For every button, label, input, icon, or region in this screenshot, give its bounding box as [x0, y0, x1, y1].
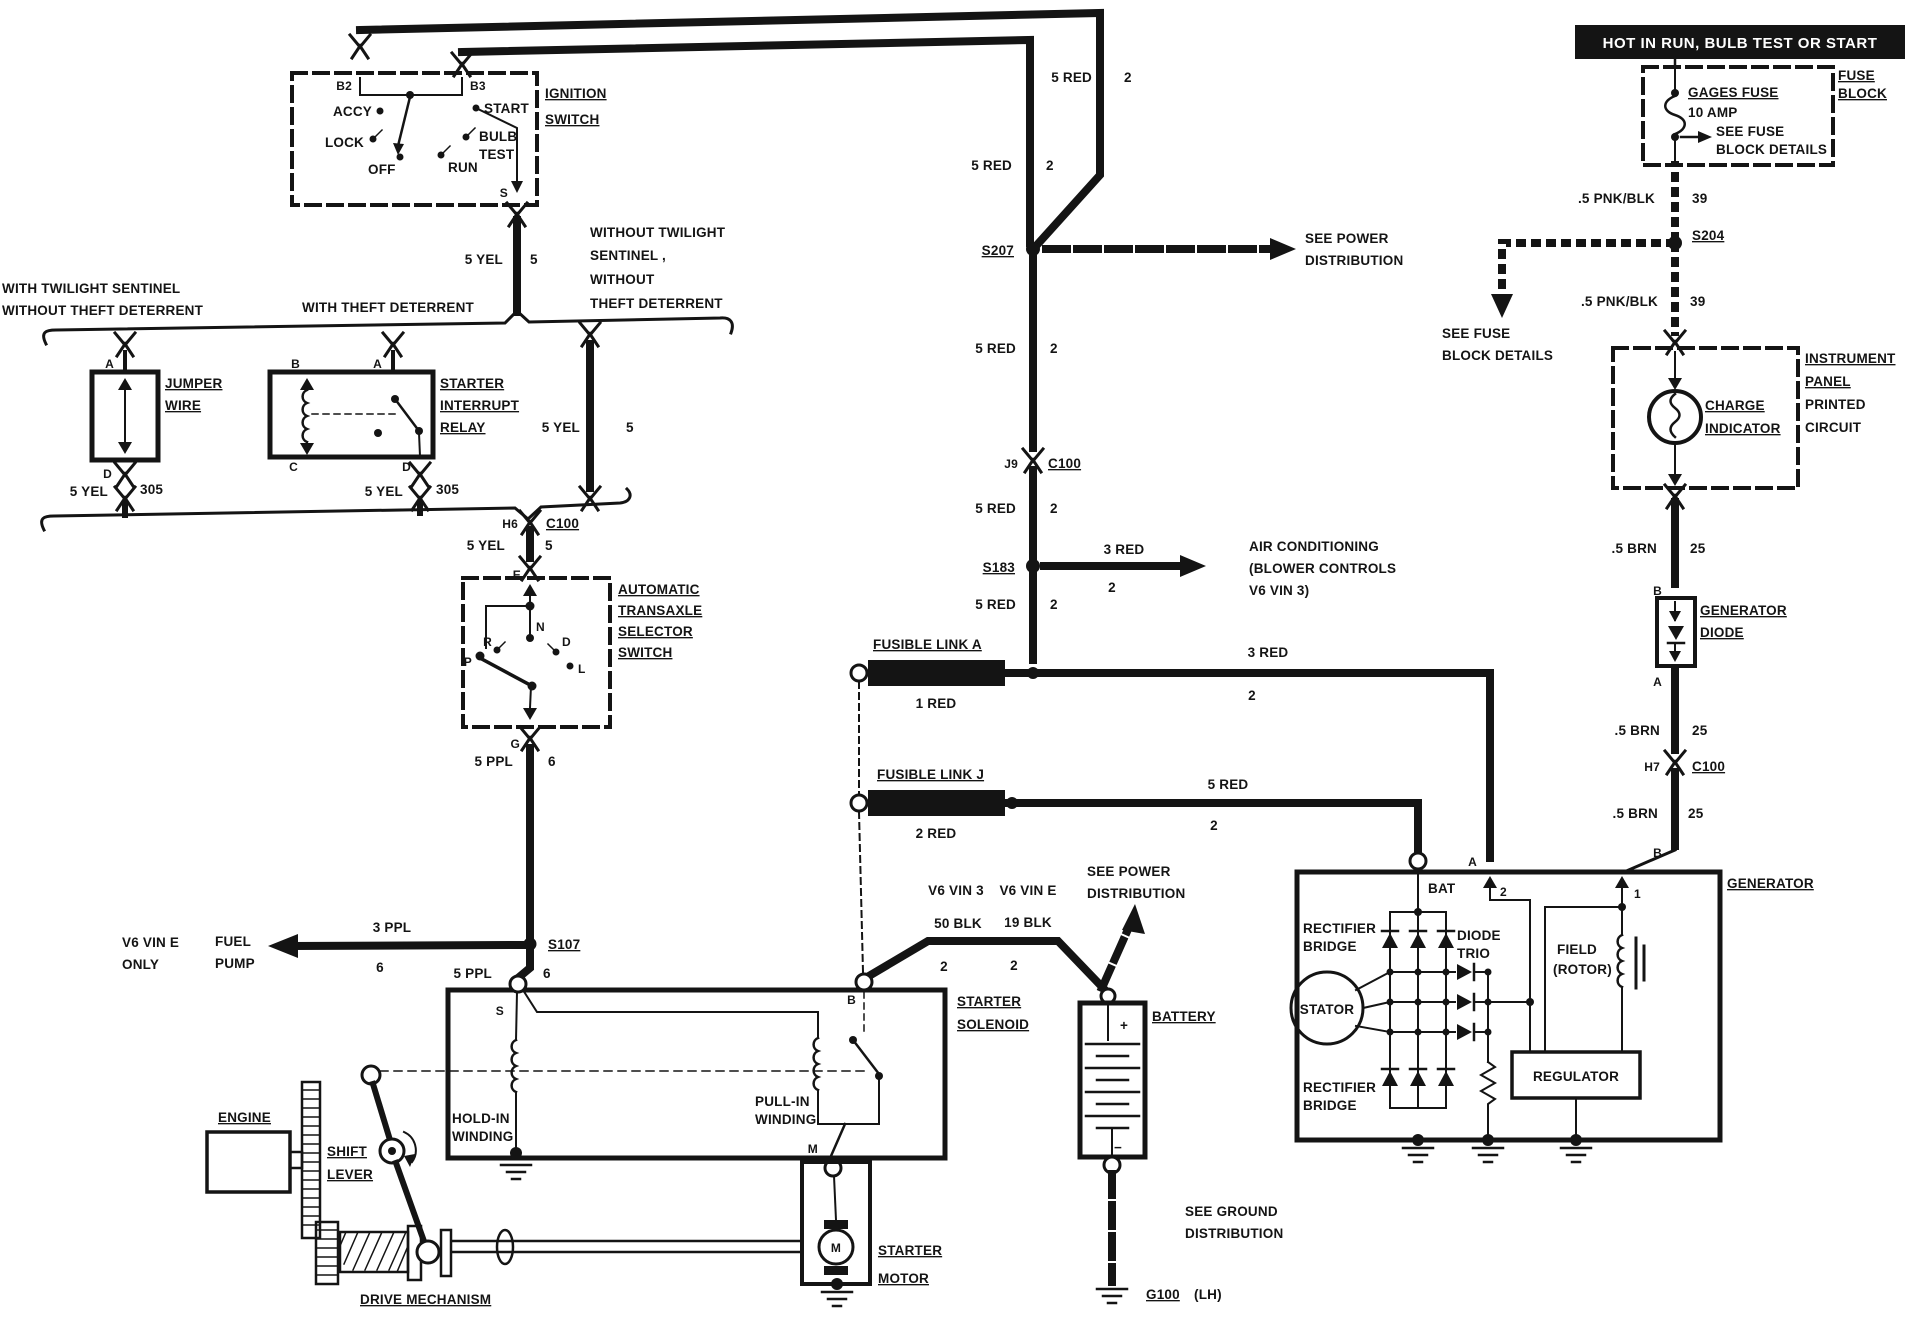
switch-position: RUN: [448, 160, 478, 175]
switch-position: START: [484, 101, 530, 116]
generator-diode-column: .5 BRN 25 B GENERATOR DIODE A .5 BRN 25 …: [1612, 502, 1787, 846]
jumper-wire: A JUMPER WIRE D 5 YEL 305: [70, 333, 223, 515]
circuit-number: 2: [1108, 580, 1116, 595]
option-label: WITH THEFT DETERRENT: [302, 300, 475, 315]
destination-label: FUEL: [215, 934, 251, 949]
option-label: V6 VIN E: [122, 935, 179, 950]
note-label: BLOCK DETAILS: [1716, 142, 1827, 157]
minus-sign: −: [1114, 1140, 1122, 1155]
note-label: SEE FUSE: [1716, 124, 1784, 139]
destination-label: (BLOWER CONTROLS: [1249, 561, 1396, 576]
component-title: FUSIBLE LINK A: [873, 637, 982, 652]
circuit-number: 2: [1050, 501, 1058, 516]
connector-label: C100: [1692, 759, 1725, 774]
connector-label: C100: [1048, 456, 1081, 471]
circuit-number: 5: [530, 252, 538, 267]
component-title: TRANSAXLE: [618, 603, 702, 618]
component-title: PRINTED: [1805, 397, 1866, 412]
feed-label: HOT IN RUN, BULB TEST OR START: [1603, 35, 1878, 52]
destination-label: PUMP: [215, 956, 255, 971]
splice-label: S204: [1692, 228, 1725, 243]
destination-label: DISTRIBUTION: [1087, 886, 1185, 901]
switch-position: OFF: [368, 162, 396, 177]
circuit-number: 2: [1124, 70, 1132, 85]
winding-label: WINDING: [755, 1112, 816, 1127]
wire-label: 5 YEL: [365, 484, 403, 499]
switch-position: ACCY: [333, 104, 372, 119]
gear-position: N: [536, 620, 545, 634]
option-label: V6 VIN E: [999, 883, 1056, 898]
terminal-label: A: [105, 357, 114, 371]
switch-position: BULB: [479, 129, 517, 144]
wire-label: 5 RED: [971, 158, 1012, 173]
component-title: SOLENOID: [957, 1017, 1029, 1032]
component-title: SWITCH: [618, 645, 672, 660]
component-title: IGNITION: [545, 86, 607, 101]
circuit-number: 25: [1690, 541, 1706, 556]
terminal-label: A: [1653, 675, 1662, 689]
option-label: V6 VIN 3: [928, 883, 984, 898]
option-label: SENTINEL ,: [590, 248, 666, 263]
wire-label: 5 PPL: [474, 754, 513, 769]
regulator-label: REGULATOR: [1533, 1069, 1619, 1084]
component-title: BATTERY: [1152, 1009, 1216, 1024]
transaxle-selector-switch: AUTOMATIC TRANSAXLE SELECTOR SWITCH R N …: [463, 578, 702, 938]
terminal-label: B: [1653, 584, 1662, 598]
circuit-number: 305: [140, 482, 163, 497]
fuse-rating: 10 AMP: [1688, 105, 1737, 120]
circuit-number: 2: [1050, 597, 1058, 612]
wire-label: 5 RED: [975, 597, 1016, 612]
component-title: FUSIBLE LINK J: [877, 767, 984, 782]
terminal-label: B: [847, 993, 856, 1007]
battery: BATTERY + − G100 (LH) SEE GROUND DISTRIB…: [1080, 989, 1283, 1303]
terminal-label: A: [373, 357, 382, 371]
terminal-label: 1: [1634, 887, 1641, 901]
terminal-label: 2: [1500, 885, 1507, 899]
destination-label: DISTRIBUTION: [1185, 1226, 1283, 1241]
terminal-label: G: [510, 737, 520, 751]
wire-label: 5 YEL: [467, 538, 505, 553]
wire-label: 3 PPL: [373, 920, 412, 935]
component-title: INTERRUPT: [440, 398, 520, 413]
component-title: INSTRUMENT: [1805, 351, 1896, 366]
component-title: DIODE: [1700, 625, 1744, 640]
trio-label: DIODE: [1457, 928, 1501, 943]
circuit-number: 2: [1248, 688, 1256, 703]
wire-label: 5 RED: [1051, 70, 1092, 85]
pin-label: H6: [502, 517, 518, 531]
component-title: PANEL: [1805, 374, 1851, 389]
terminal-label: D: [103, 467, 112, 481]
terminal-label: S: [496, 1004, 504, 1018]
bridge-label: BRIDGE: [1303, 1098, 1357, 1113]
hot-in-run-banner: HOT IN RUN, BULB TEST OR START: [1575, 25, 1905, 59]
destination-label: SEE GROUND: [1185, 1204, 1278, 1219]
component-title: MOTOR: [878, 1271, 929, 1286]
terminal-label: M: [808, 1142, 818, 1156]
component-title: STARTER: [440, 376, 504, 391]
ignition-switch: IGNITION SWITCH B2 B3 ACCY LOCK OFF RUN …: [292, 73, 607, 312]
fuel-pump-branch: S107 3 PPL 6 FUEL PUMP V6 VIN E ONLY 5 P…: [122, 920, 580, 981]
wire-label: 5 YEL: [70, 484, 108, 499]
destination-label: SEE FUSE: [1442, 326, 1510, 341]
circuit-number: 5: [626, 420, 634, 435]
circuit-number: 25: [1688, 806, 1704, 821]
option-label: WITH TWILIGHT SENTINEL: [2, 281, 180, 296]
component-title: STARTER: [957, 994, 1021, 1009]
circuit-number: 6: [543, 966, 551, 981]
destination-label: V6 VIN 3): [1249, 583, 1309, 598]
splice-label: S207: [982, 243, 1014, 258]
ground-label: (LH): [1194, 1287, 1222, 1302]
splice-label: S107: [548, 937, 580, 952]
component-title: RELAY: [440, 420, 486, 435]
gear-position: P: [464, 655, 472, 669]
stator-label: STATOR: [1300, 1002, 1354, 1017]
option-label: WITHOUT THEFT DETERRENT: [2, 303, 204, 318]
starting-charging-wiring-diagram: 5 RED 2 5 RED 2 IGNITION SWITCH B2 B3 AC…: [0, 0, 1906, 1344]
component-title: STARTER: [878, 1243, 942, 1258]
ground-label: G100: [1146, 1287, 1180, 1302]
circuit-number: 6: [548, 754, 556, 769]
five-yel-branch: 5 YEL 5: [542, 323, 634, 510]
option-label: WITHOUT: [590, 272, 655, 287]
wire-label: 2 RED: [916, 826, 957, 841]
circuit-number: 305: [436, 482, 459, 497]
wire-label: 5 YEL: [542, 420, 580, 435]
trio-label: TRIO: [1457, 946, 1490, 961]
wire-label: .5 PNK/BLK: [1578, 191, 1655, 206]
bridge-label: RECTIFIER: [1303, 1080, 1376, 1095]
splice-label: S183: [983, 560, 1016, 575]
wire-label: 5 RED: [1208, 777, 1249, 792]
component-title: BLOCK: [1838, 86, 1887, 101]
component-title: ENGINE: [218, 1110, 271, 1125]
wire-label: 3 RED: [1248, 645, 1289, 660]
wire-label: .5 BRN: [1615, 723, 1660, 738]
winding-label: PULL-IN: [755, 1094, 810, 1109]
wire-label: .5 BRN: [1612, 541, 1657, 556]
component-title: GENERATOR: [1700, 603, 1787, 618]
option-label: THEFT DETERRENT: [590, 296, 723, 311]
circuit-number: 2: [1050, 341, 1058, 356]
wiring-diagram-page: 5 RED 2 5 RED 2 IGNITION SWITCH B2 B3 AC…: [0, 0, 1906, 1344]
option-label: ONLY: [122, 957, 159, 972]
component-title: CIRCUIT: [1805, 420, 1862, 435]
starter-motor: M STARTER MOTOR: [802, 1160, 942, 1306]
component-title: SWITCH: [545, 112, 599, 127]
circuit-number: 2: [1046, 158, 1054, 173]
terminal-label: B: [291, 357, 300, 371]
component-title: GENERATOR: [1727, 876, 1814, 891]
wire-label: 1 RED: [916, 696, 957, 711]
center-trunk: S207 SEE POWER DISTRIBUTION 5 RED 2 J9 C…: [975, 231, 1403, 660]
field-label: FIELD: [1557, 942, 1597, 957]
component-title: FUSE: [1838, 68, 1875, 83]
wire-label: 5 YEL: [465, 252, 503, 267]
c100-connector-h6: H6 C100 5 YEL 5 E: [467, 511, 579, 582]
gear-position: D: [562, 635, 571, 649]
wire-label: 19 BLK: [1004, 915, 1052, 930]
circuit-number: 2: [1210, 818, 1218, 833]
terminal-label: B2: [336, 79, 352, 93]
gear-position: L: [578, 662, 586, 676]
winding-label: HOLD-IN: [452, 1111, 510, 1126]
terminal-label: A: [1468, 855, 1477, 869]
motor-letter: M: [831, 1241, 841, 1255]
fuse-name: GAGES FUSE: [1688, 85, 1779, 100]
wire-label: 50 BLK: [934, 916, 982, 931]
s204-branch: .5 PNK/BLK 39 S204 SEE FUSE BLOCK DETAIL…: [1442, 165, 1725, 363]
top-feed-rails: 5 RED 2 5 RED 2: [350, 13, 1132, 246]
wire-label: .5 BRN: [1613, 806, 1658, 821]
component-title: DRIVE MECHANISM: [360, 1292, 491, 1307]
destination-label: DISTRIBUTION: [1305, 253, 1403, 268]
generator: GENERATOR BAT A 2 B 1 FIELD (ROTOR) RECT…: [1291, 846, 1814, 1162]
circuit-number: 2: [940, 959, 948, 974]
gear-position: R: [483, 635, 492, 649]
pin-label: J9: [1004, 457, 1018, 471]
wire-label: 5 PPL: [453, 966, 492, 981]
circuit-number: 39: [1690, 294, 1705, 309]
plus-sign: +: [1120, 1018, 1128, 1033]
bridge-label: BRIDGE: [1303, 939, 1357, 954]
indicator-label: CHARGE: [1705, 398, 1765, 413]
starter-solenoid: V6 VIN 3 V6 VIN E 50 BLK 2 19 BLK 2 SEE …: [380, 864, 1185, 1179]
wire-label: .5 PNK/BLK: [1581, 294, 1658, 309]
switch-position: TEST: [479, 147, 515, 162]
destination-label: SEE POWER: [1087, 864, 1171, 879]
switch-position: LOCK: [325, 135, 364, 150]
component-title: SELECTOR: [618, 624, 693, 639]
instrument-panel-charge-indicator: INSTRUMENT PANEL PRINTED CIRCUIT CHARGE …: [1613, 348, 1896, 508]
terminal-label: B3: [470, 79, 486, 93]
terminal-label: S: [500, 186, 508, 200]
component-title: JUMPER: [165, 376, 223, 391]
pin-label: H7: [1644, 760, 1660, 774]
option-label: WITHOUT TWILIGHT: [590, 225, 726, 240]
terminal-label: BAT: [1428, 881, 1456, 896]
wire-label: 5 RED: [975, 501, 1016, 516]
drive-mechanism: ENGINE SHIFT LEVER DRIVE MECHANISM: [207, 1066, 802, 1307]
component-title: LEVER: [327, 1167, 373, 1182]
indicator-label: INDICATOR: [1705, 421, 1781, 436]
wire-label: 3 RED: [1104, 542, 1145, 557]
destination-label: AIR CONDITIONING: [1249, 539, 1379, 554]
destination-label: SEE POWER: [1305, 231, 1389, 246]
circuit-number: 25: [1692, 723, 1708, 738]
destination-label: BLOCK DETAILS: [1442, 348, 1553, 363]
terminal-label: C: [289, 460, 298, 474]
starter-interrupt-relay: A B STARTER INTERRUPT RELAY C D 5 YEL 30…: [270, 333, 520, 513]
circuit-number: 39: [1692, 191, 1707, 206]
component-title: WIRE: [165, 398, 201, 413]
connector-label: C100: [546, 516, 579, 531]
bridge-label: RECTIFIER: [1303, 921, 1376, 936]
circuit-number: 6: [376, 960, 384, 975]
component-title: SHIFT: [327, 1144, 368, 1159]
circuit-number: 5: [545, 538, 553, 553]
circuit-number: 2: [1010, 958, 1018, 973]
fuse-block: FUSE BLOCK GAGES FUSE 10 AMP SEE FUSE BL…: [1643, 59, 1887, 165]
component-title: AUTOMATIC: [618, 582, 700, 597]
winding-label: WINDING: [452, 1129, 513, 1144]
wire-label: 5 RED: [975, 341, 1016, 356]
field-label: (ROTOR): [1553, 962, 1612, 977]
